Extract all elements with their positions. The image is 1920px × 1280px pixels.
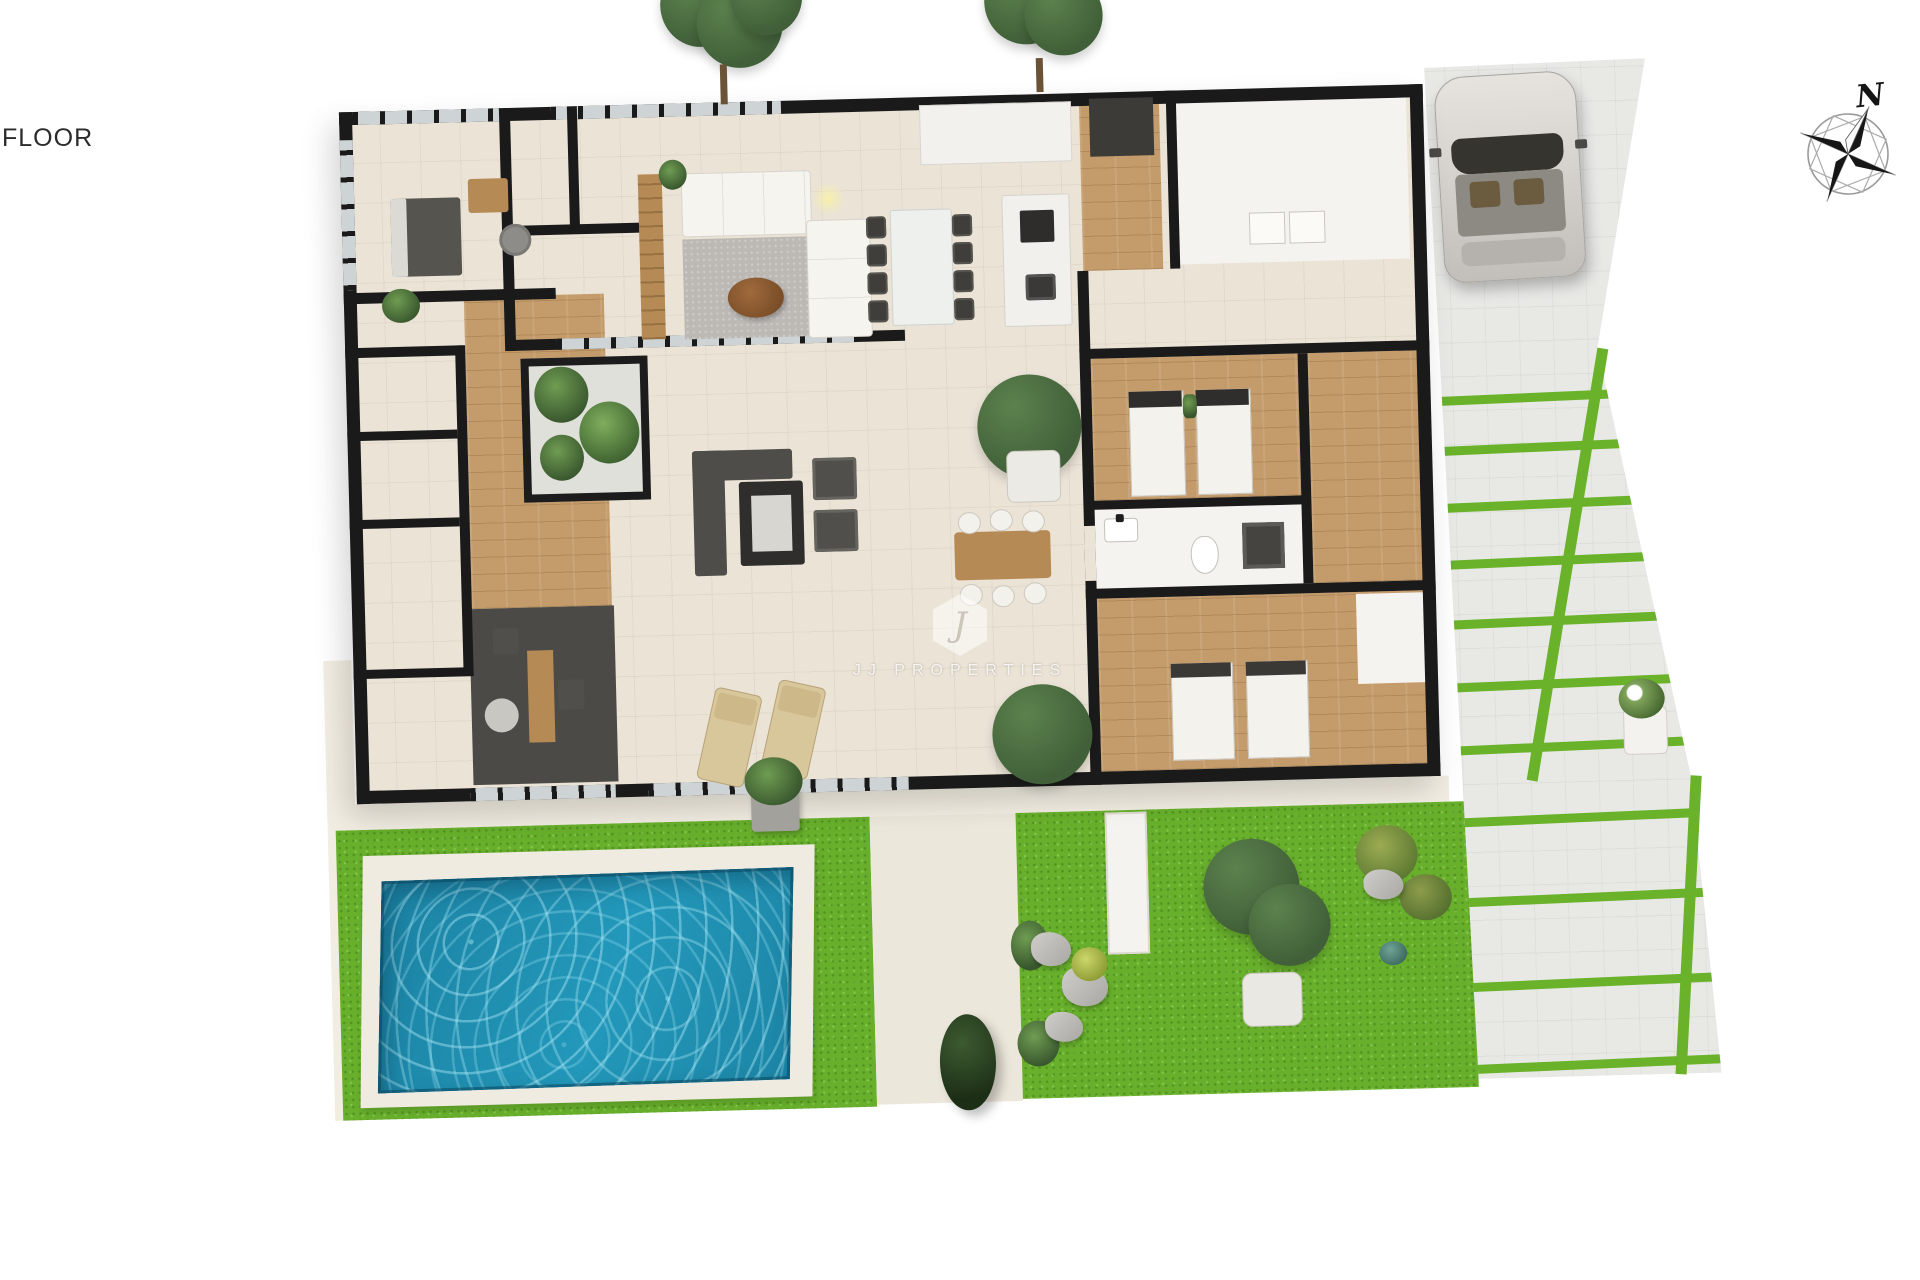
driveway-grass-joint: [1420, 435, 1720, 457]
dryer: [1289, 211, 1326, 244]
street-tree: [1024, 0, 1104, 56]
living-sofa: [681, 170, 813, 237]
driveway-grass-joint: [1430, 807, 1730, 829]
car-mirror: [1575, 139, 1588, 149]
master-side-table: [468, 178, 509, 213]
corridor-wood-floor: [1308, 350, 1424, 583]
car-cabin: [1455, 169, 1567, 237]
kitchen-counter: [919, 101, 1073, 165]
twin-bed-headboard: [1128, 390, 1181, 407]
car-seat: [1469, 180, 1501, 208]
outdoor-table-top: [751, 495, 792, 552]
driveway-grass-joint: [1428, 735, 1728, 757]
dining-chair: [868, 300, 889, 323]
driveway-grass-joint: [1419, 385, 1719, 407]
car-seat: [1513, 178, 1545, 206]
dining-chair: [953, 242, 974, 265]
shower: [1242, 522, 1285, 569]
master-bed-pillows: [390, 199, 408, 277]
double-bed-headboard: [1246, 660, 1306, 676]
tree-trunk: [720, 64, 728, 104]
tree-planter: [1242, 972, 1303, 1028]
washer: [1249, 212, 1286, 245]
study-chair: [558, 679, 585, 710]
dining-chair: [953, 270, 974, 293]
compass-north-label: N: [1854, 77, 1886, 116]
dining-chair: [952, 214, 973, 237]
outdoor-armchair: [812, 457, 857, 500]
dining-chair: [954, 298, 975, 321]
driveway-grass-joint: [1436, 1054, 1736, 1076]
terrace-tree-planter: [1006, 450, 1061, 503]
compass-rose-icon: [1782, 86, 1920, 226]
living-sofa-side: [806, 219, 873, 339]
kitchen-sink: [1025, 274, 1056, 301]
dining-chair: [867, 272, 888, 295]
living-wardrobe: [638, 174, 666, 340]
double-bed-headboard: [1171, 662, 1231, 678]
car-mirror: [1429, 148, 1442, 158]
kitchen-tall-unit: [1089, 97, 1154, 157]
car: [1433, 70, 1587, 284]
garden-steps: [1104, 812, 1150, 955]
pool: [378, 867, 794, 1094]
outdoor-sofa: [692, 450, 727, 576]
dining-table: [890, 208, 955, 326]
tree-trunk: [1036, 58, 1044, 92]
cooktop: [1020, 210, 1055, 243]
floorplan-render: FLOOR: [0, 0, 1920, 1280]
bedside-plant: [1183, 394, 1198, 418]
ensuite-floor: [1356, 592, 1426, 684]
dining-chair: [866, 216, 887, 239]
basin-tap: [1116, 514, 1124, 522]
outdoor-armchair: [813, 509, 858, 552]
dining-chair: [867, 244, 888, 267]
watermark-name: JJ PROPERTIES: [810, 662, 1110, 680]
driveway-grass-joint: [1425, 609, 1725, 631]
watermark-monogram: J: [953, 605, 967, 645]
outdoor-dining-table: [954, 530, 1051, 580]
twin-bed-headboard: [1195, 389, 1248, 406]
door-gap: [1084, 526, 1096, 581]
driveway-grass-joint: [1426, 672, 1726, 694]
study-sofa: [492, 628, 519, 655]
study-desk: [527, 650, 555, 743]
